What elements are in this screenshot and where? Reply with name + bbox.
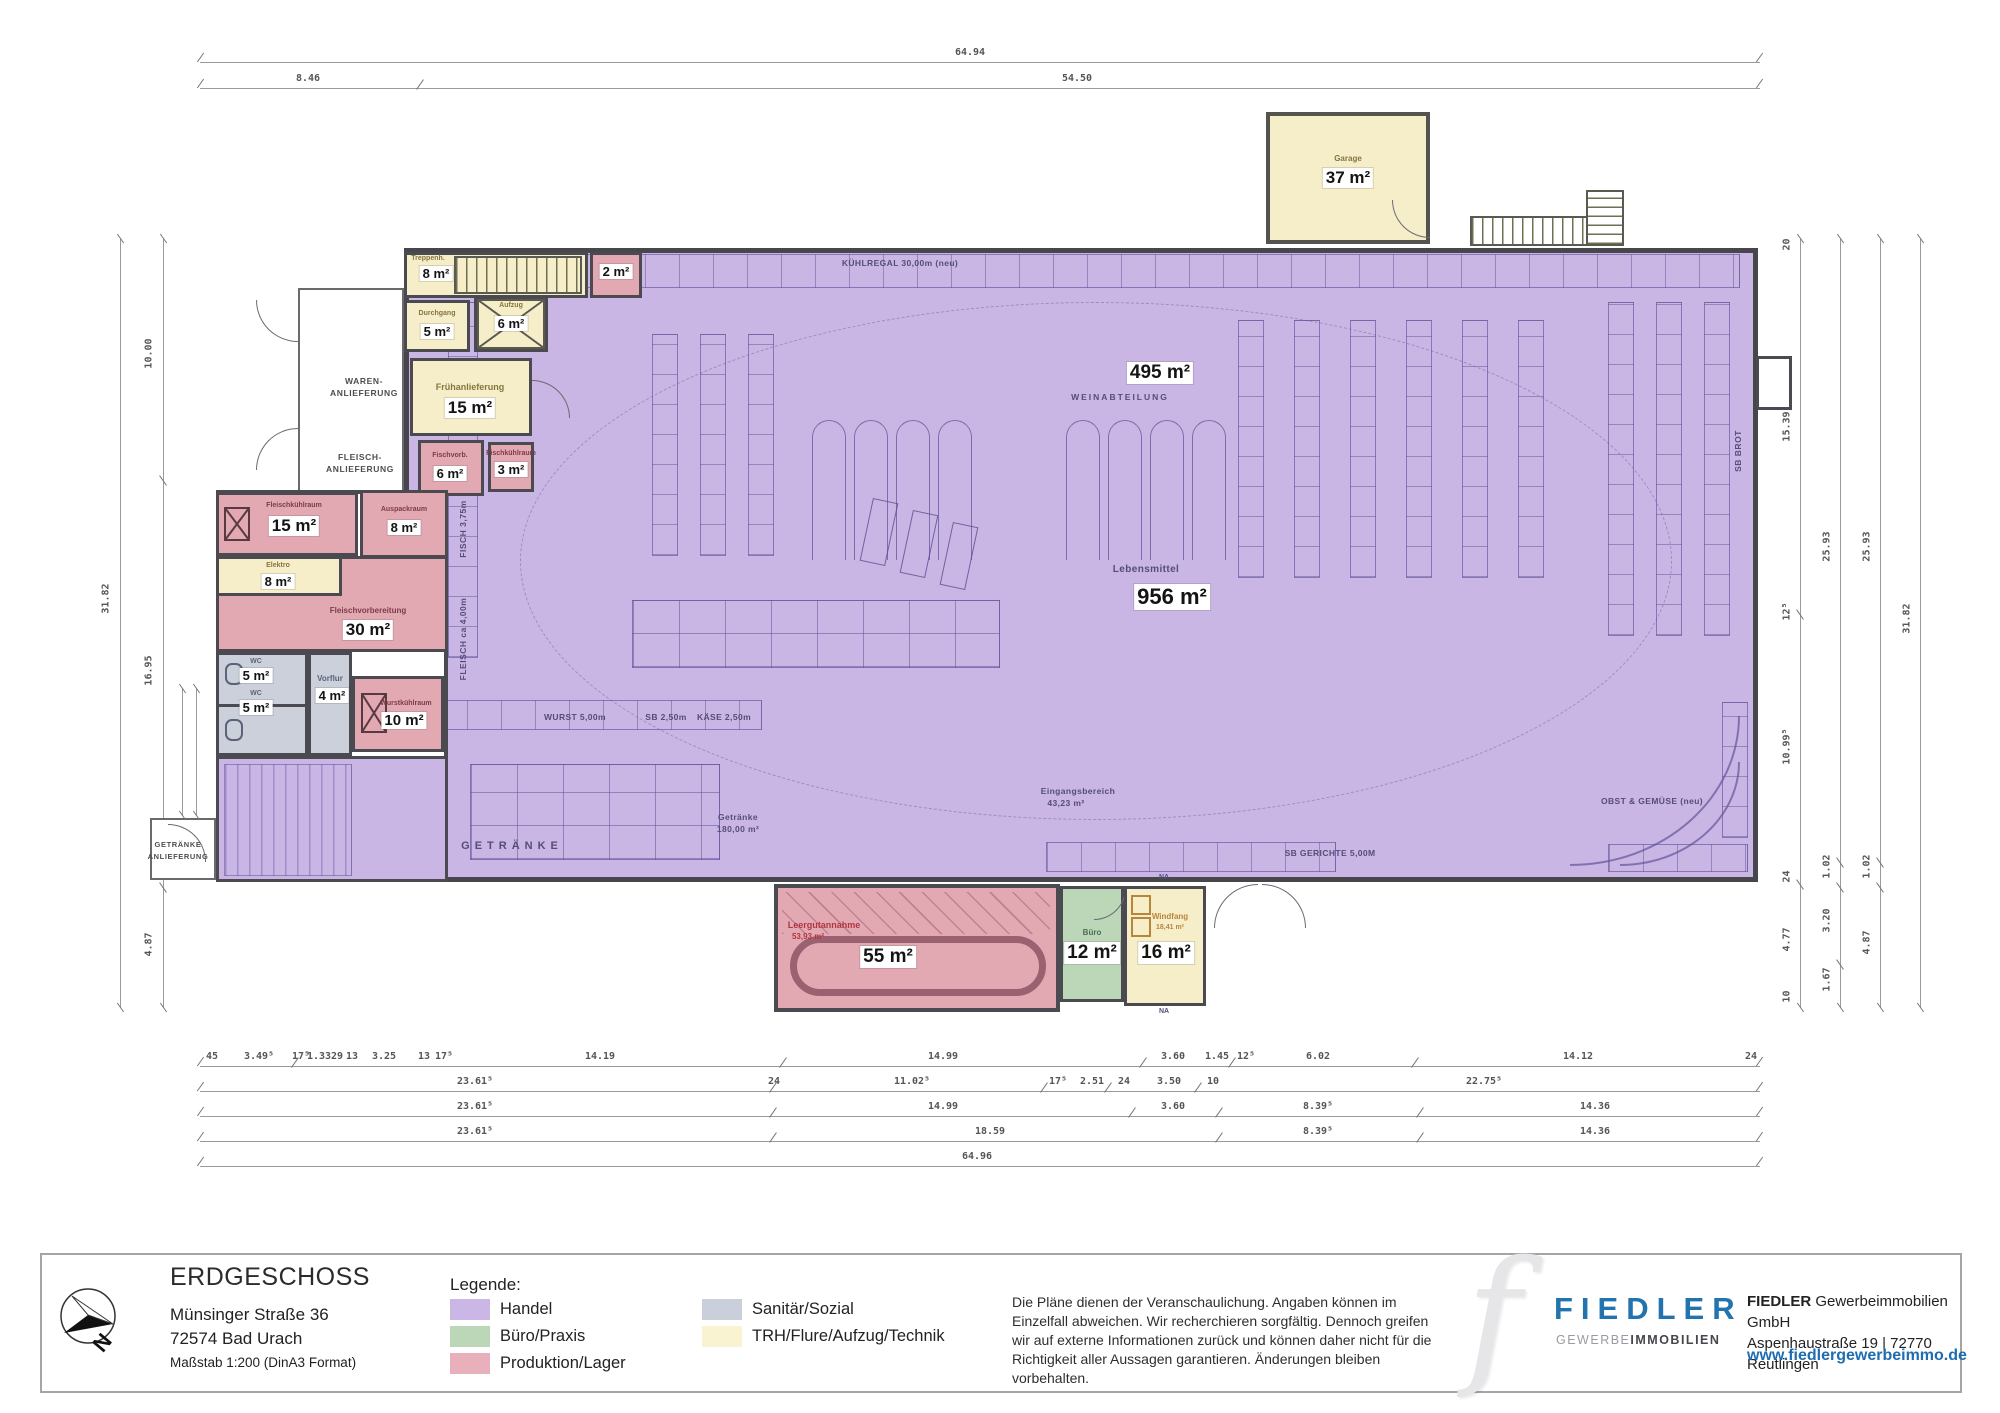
dim-label: 4.77 bbox=[1782, 908, 1793, 972]
ramp-rail bbox=[196, 688, 197, 816]
legend-swatch-buero bbox=[450, 1326, 490, 1347]
dimension-line-right-1 bbox=[1800, 238, 1801, 1008]
dim-label: 23.61⁵ bbox=[457, 1101, 493, 1112]
ramp-rail bbox=[182, 688, 183, 816]
room-name: Durchgang bbox=[419, 310, 456, 317]
dim-label: 3.25 bbox=[372, 1051, 396, 1062]
fiedler-wordmark: FIEDLER bbox=[1554, 1291, 1743, 1327]
exterior-stairs bbox=[1586, 190, 1624, 246]
wall-shelf bbox=[1608, 302, 1634, 636]
dimension-line-left-total bbox=[120, 238, 121, 1008]
zone-label-sb-brot: SB BROT bbox=[1733, 396, 1743, 506]
label-getraenke-anlieferung: GETRÄNKE bbox=[155, 840, 202, 849]
dim-label: 23.61⁵ bbox=[457, 1126, 493, 1137]
dim-label: 23.61⁵ bbox=[457, 1076, 493, 1087]
dim-label: 29 bbox=[331, 1051, 343, 1062]
dim-label: 10.00 bbox=[144, 322, 155, 386]
room-vorflur bbox=[308, 652, 352, 756]
dim-label: 31.82 bbox=[1902, 587, 1913, 651]
zone-label-getraenke-name: Getränke bbox=[718, 812, 758, 822]
dim-label: 45 bbox=[206, 1051, 218, 1062]
room-name: Fleischkühlraum bbox=[266, 502, 322, 509]
dim-label: 14.36 bbox=[1580, 1126, 1610, 1137]
dimension-line-bottom-total bbox=[200, 1166, 1760, 1167]
room-name: Fischvorb. bbox=[432, 452, 467, 459]
room-name: Elektro bbox=[266, 562, 290, 569]
wall-shelf bbox=[1704, 302, 1730, 636]
legend-label: Produktion/Lager bbox=[500, 1354, 626, 1373]
zone-label-getraenke-area: 180,00 m² bbox=[717, 824, 759, 834]
dim-label: 3.60 bbox=[1161, 1101, 1185, 1112]
dimension-line-bottom-2 bbox=[200, 1091, 1760, 1092]
customer-path-ellipse bbox=[520, 302, 1672, 820]
room-area: 2 m² bbox=[600, 264, 633, 279]
dim-label: 25.93 bbox=[1862, 515, 1873, 579]
wine-rack bbox=[1108, 420, 1142, 560]
dimension-line-right-4 bbox=[1920, 238, 1921, 1008]
room-area: 4 m² bbox=[316, 688, 349, 703]
fixture-icon bbox=[1131, 895, 1151, 915]
counter-label-fleisch: FLEISCH ca 4,00m bbox=[458, 584, 468, 694]
dim-label: 1.45 bbox=[1205, 1051, 1229, 1062]
wine-rack bbox=[812, 420, 846, 560]
dim-label: 14.12 bbox=[1563, 1051, 1593, 1062]
zone-label-eingang-area: 43,23 m² bbox=[1047, 798, 1084, 808]
dim-label: 8.39⁵ bbox=[1303, 1126, 1333, 1137]
label-fleisch-anlieferung: FLEISCH- bbox=[338, 452, 382, 462]
room-name: Aufzug bbox=[499, 302, 523, 309]
dim-label: 1.02 bbox=[1862, 835, 1873, 899]
address-line: 72574 Bad Urach bbox=[170, 1329, 302, 1349]
counter-label-wurst: WURST 5,00m bbox=[544, 712, 606, 722]
dim-label: 10 bbox=[1207, 1076, 1219, 1087]
zone-label-eingang: Eingangsbereich bbox=[1041, 786, 1116, 796]
counter-label-sb: SB 2,50m bbox=[645, 712, 686, 722]
company-line: FIEDLER Gewerbeimmobilien GmbH bbox=[1747, 1291, 1960, 1333]
room-name: Treppenh. bbox=[411, 255, 444, 262]
wine-rack bbox=[1150, 420, 1184, 560]
dim-label: 22.75⁵ bbox=[1466, 1076, 1502, 1087]
dim-label: 6.02 bbox=[1306, 1051, 1330, 1062]
dim-label: 10 bbox=[1782, 965, 1793, 1029]
legend-heading: Legende: bbox=[450, 1275, 521, 1295]
dim-label: 17⁵ bbox=[1049, 1076, 1067, 1087]
room-name: Leergutannahme bbox=[788, 920, 861, 930]
dim-label: 64.96 bbox=[962, 1151, 992, 1162]
label-fleisch-anlieferung: ANLIEFERUNG bbox=[326, 464, 394, 474]
dimension-line-bottom-1 bbox=[200, 1066, 1760, 1067]
dim-label: 3.20 bbox=[1822, 889, 1833, 953]
room-fruehanlieferung bbox=[410, 358, 532, 436]
legend-label: Büro/Praxis bbox=[500, 1327, 585, 1346]
room-area: 6 m² bbox=[495, 316, 528, 331]
legend-swatch-produktion bbox=[450, 1353, 490, 1374]
dim-label: 3.60 bbox=[1161, 1051, 1185, 1062]
title-block: N ERDGESCHOSS Münsinger Straße 36 72574 … bbox=[40, 1253, 1962, 1393]
dimension-line-top-total bbox=[200, 62, 1760, 63]
room-name: WC bbox=[250, 690, 262, 697]
room-subarea: 18,41 m² bbox=[1156, 924, 1184, 931]
address-line: Münsinger Straße 36 bbox=[170, 1305, 329, 1325]
dim-label: 14.99 bbox=[928, 1101, 958, 1112]
dimension-line-left-segments bbox=[163, 238, 164, 1008]
room-area: 15 m² bbox=[269, 516, 319, 536]
gondola-shelf bbox=[1238, 320, 1264, 578]
wall-shelf bbox=[1656, 302, 1682, 636]
zone-label-sb-gerichte: SB GERICHTE 5,00M bbox=[1285, 848, 1376, 858]
dimension-line-right-3 bbox=[1880, 238, 1881, 1008]
company-website[interactable]: www.fiedlergewerbeimmo.de bbox=[1747, 1347, 1967, 1365]
sub-dark: IMMOBILIEN bbox=[1630, 1333, 1720, 1347]
gondola-shelf bbox=[700, 334, 726, 556]
dim-label: 13 bbox=[418, 1051, 430, 1062]
label-getraenke-anlieferung: ANLIEFERUNG bbox=[148, 852, 209, 861]
dim-label: 8.46 bbox=[296, 73, 320, 84]
gondola-shelf bbox=[1294, 320, 1320, 578]
cooling-unit-icon bbox=[224, 507, 250, 541]
room-area: 37 m² bbox=[1323, 168, 1373, 188]
dim-label: 14.36 bbox=[1580, 1101, 1610, 1112]
produce-bins bbox=[1608, 844, 1748, 872]
legend-swatch-handel bbox=[450, 1299, 490, 1320]
room-area: 10 m² bbox=[381, 712, 426, 729]
gondola-shelf bbox=[1350, 320, 1376, 578]
stairs bbox=[454, 256, 582, 294]
toilet-icon bbox=[225, 719, 243, 741]
room-area: 5 m² bbox=[240, 700, 273, 715]
dim-label: 17⁵ bbox=[435, 1051, 453, 1062]
room-area: 30 m² bbox=[343, 620, 393, 640]
room-name: Auspackraum bbox=[381, 506, 427, 513]
door-arc bbox=[256, 300, 298, 342]
floor-plan-page: 64.94 8.46 54.50 31.82 10.00 16.95 4.87 … bbox=[0, 0, 2000, 1413]
dim-label: 1.67 bbox=[1822, 948, 1833, 1012]
room-area: 8 m² bbox=[262, 574, 295, 589]
crate-storage bbox=[224, 764, 352, 876]
scale-note: Maßstab 1:200 (DinA3 Format) bbox=[170, 1355, 356, 1370]
gondola-shelf bbox=[652, 334, 678, 556]
room-name: Windfang bbox=[1152, 912, 1188, 921]
gondola-shelf bbox=[748, 334, 774, 556]
exit-bump bbox=[1756, 356, 1792, 410]
dimension-line-bottom-4 bbox=[200, 1141, 1760, 1142]
dim-label: 3.49⁵ bbox=[244, 1051, 274, 1062]
bottle-return-conveyor bbox=[790, 936, 1046, 996]
room-name: Frühanlieferung bbox=[436, 382, 505, 392]
dim-label: 1.33 bbox=[307, 1051, 331, 1062]
wine-rack bbox=[1192, 420, 1226, 560]
dim-label: 24 bbox=[1782, 845, 1793, 909]
zone-label-kuehlregal: KÜHLREGAL 30,00m (neu) bbox=[842, 258, 958, 268]
room-name: Fleischvorbereitung bbox=[330, 606, 406, 615]
room-name: Fischkühlraum bbox=[486, 450, 536, 457]
room-subarea: 53,93 m² bbox=[792, 932, 824, 941]
fixture-icon bbox=[1131, 917, 1151, 937]
entrance-door-arc bbox=[1262, 884, 1306, 928]
dim-label: 54.50 bbox=[1062, 73, 1092, 84]
legend-swatch-trh bbox=[702, 1326, 742, 1347]
room-area: 5 m² bbox=[240, 668, 273, 683]
dim-label: 8.39⁵ bbox=[1303, 1101, 1333, 1112]
label-waren-anlieferung: ANLIEFERUNG bbox=[330, 388, 398, 398]
counter-label-kaese: KÄSE 2,50m bbox=[697, 712, 751, 722]
zone-label-obst: OBST & GEMÜSE (neu) bbox=[1601, 796, 1703, 806]
dim-label: 3.50 bbox=[1157, 1076, 1181, 1087]
room-area: 6 m² bbox=[434, 466, 467, 481]
svg-text:N: N bbox=[87, 1328, 116, 1356]
dim-label: 24 bbox=[1118, 1076, 1130, 1087]
label-waren-anlieferung: WAREN- bbox=[345, 376, 383, 386]
dim-label: 31.82 bbox=[101, 567, 112, 631]
zone-label-wein: WEINABTEILUNG bbox=[1071, 392, 1169, 402]
dim-label: 4.87 bbox=[1862, 911, 1873, 975]
wine-rack bbox=[1066, 420, 1100, 560]
fiedler-f-logo-icon: f bbox=[1466, 1241, 1521, 1389]
zone-label-lebensmittel: Lebensmittel bbox=[1113, 564, 1179, 575]
dim-label: 11.02⁵ bbox=[894, 1076, 930, 1087]
legend-label: Handel bbox=[500, 1300, 552, 1319]
room-name: WC bbox=[250, 658, 262, 665]
dim-label: 24 bbox=[1745, 1051, 1757, 1062]
zone-label-getraenke: GETRÄNKE bbox=[461, 840, 563, 852]
dim-label: 12⁵ bbox=[1237, 1051, 1255, 1062]
room-name: Wurstkühlraum bbox=[380, 700, 431, 707]
room-area: 16 m² bbox=[1138, 942, 1194, 964]
room-area: 55 m² bbox=[860, 946, 916, 968]
room-name: Vorflur bbox=[317, 674, 343, 683]
dim-label: 2.51 bbox=[1080, 1076, 1104, 1087]
dim-label: 16.95 bbox=[144, 639, 155, 703]
door-arc bbox=[256, 428, 298, 470]
area-label-956: 956 m² bbox=[1134, 584, 1210, 610]
room-area: 3 m² bbox=[495, 462, 528, 477]
dim-label: 14.19 bbox=[585, 1051, 615, 1062]
dimension-line-bottom-3 bbox=[200, 1116, 1760, 1117]
room-area: 15 m² bbox=[445, 398, 495, 418]
room-area: 8 m² bbox=[388, 520, 421, 535]
room-area: 5 m² bbox=[421, 324, 454, 339]
dim-label: 10.99⁵ bbox=[1782, 715, 1793, 779]
dimension-line-top-segments bbox=[200, 88, 1760, 89]
wall-shelf bbox=[1722, 702, 1748, 838]
dim-label: 4.87 bbox=[144, 913, 155, 977]
gondola-shelf bbox=[1462, 320, 1488, 578]
room-name: Büro bbox=[1083, 928, 1102, 937]
north-compass-icon: N bbox=[58, 1283, 124, 1357]
dim-label: 14.99 bbox=[928, 1051, 958, 1062]
fiedler-sub-wordmark: GEWERBEIMMOBILIEN bbox=[1556, 1333, 1720, 1347]
dim-label: 18.59 bbox=[975, 1126, 1005, 1137]
entrance-door-arc bbox=[1214, 884, 1258, 928]
label-na: NA bbox=[1159, 1008, 1169, 1015]
dim-label: 20 bbox=[1782, 213, 1793, 277]
gondola-shelf bbox=[1518, 320, 1544, 578]
page-title: ERDGESCHOSS bbox=[170, 1263, 370, 1292]
freezer-bins bbox=[632, 600, 1000, 668]
room-name: Garage bbox=[1334, 154, 1362, 163]
dim-label: 64.94 bbox=[955, 47, 985, 58]
gondola-shelf bbox=[1406, 320, 1432, 578]
legend-swatch-sanitaer bbox=[702, 1299, 742, 1320]
sub-gray: GEWERBE bbox=[1556, 1333, 1630, 1347]
dim-label: 25.93 bbox=[1822, 515, 1833, 579]
label-na: NA bbox=[1159, 874, 1169, 881]
room-area: 12 m² bbox=[1064, 942, 1120, 964]
legend-label: TRH/Flure/Aufzug/Technik bbox=[752, 1327, 945, 1346]
exterior-stairs bbox=[1470, 216, 1588, 246]
disclaimer-text: Die Pläne dienen der Veranschaulichung. … bbox=[1012, 1293, 1442, 1388]
dim-label: 13 bbox=[346, 1051, 358, 1062]
room-area: 8 m² bbox=[420, 266, 453, 281]
area-label-495: 495 m² bbox=[1127, 362, 1193, 384]
dim-label: 12⁵ bbox=[1782, 580, 1793, 644]
legend-label: Sanitär/Sozial bbox=[752, 1300, 854, 1319]
company-bold: FIEDLER bbox=[1747, 1293, 1811, 1310]
dimension-line-right-2 bbox=[1840, 238, 1841, 1008]
